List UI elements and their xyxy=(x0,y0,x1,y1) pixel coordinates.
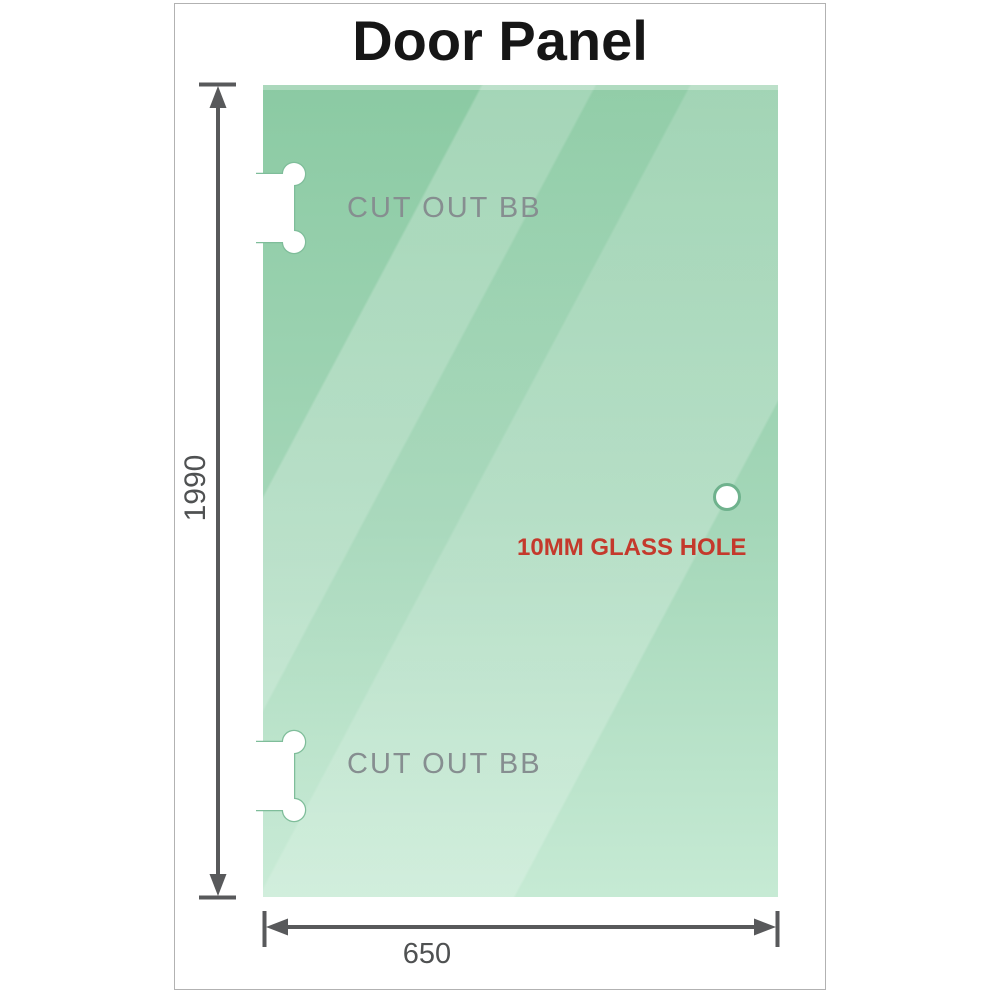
hinge-cutout-bottom-icon xyxy=(256,729,308,823)
width-dimension-label: 650 xyxy=(377,938,477,971)
diagram-title: Door Panel xyxy=(174,8,826,73)
hinge-cutout-top-icon xyxy=(256,161,308,255)
glass-hole-icon xyxy=(710,480,744,514)
cutout-bottom-label: CUT OUT BB xyxy=(347,748,607,781)
diagram-canvas: Door Panel xyxy=(0,0,1000,1000)
height-dimension-label: 1990 xyxy=(176,428,216,548)
cutout-top-label: CUT OUT BB xyxy=(347,192,607,225)
glass-hole-label: 10MM GLASS HOLE xyxy=(517,534,746,562)
